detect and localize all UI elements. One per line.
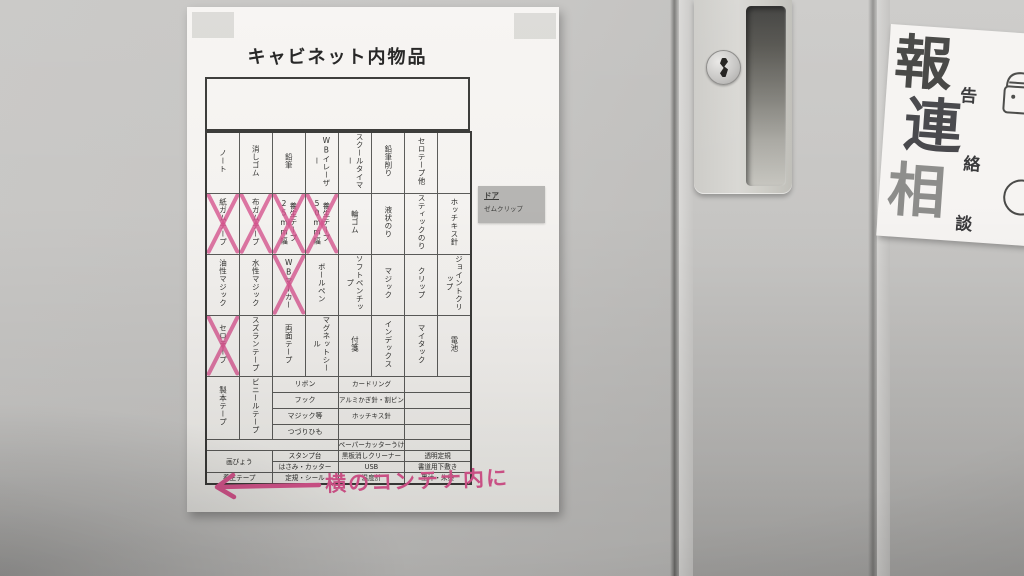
table-cell: 養生テープ25mm幅 <box>279 194 298 250</box>
table-cell: 消しゴム <box>251 145 260 177</box>
table-cell: ホッチキス針 <box>339 409 405 425</box>
table-cell: ノート <box>218 149 227 173</box>
table-row: 油性マジック 水性マジック WBマーカー ボールペン ソフトペンチップ マジック… <box>206 255 471 316</box>
sign-kanji-ren: 連 <box>902 95 964 157</box>
sign-kanji-raku: 絡 <box>963 149 982 175</box>
table-cell: セロテープ他 <box>417 137 426 185</box>
table-cell: 鉛筆 <box>284 153 293 169</box>
left-arrow-icon <box>203 469 323 503</box>
table-cell: インデックス <box>383 320 392 368</box>
table-cell: セロテープ <box>218 324 227 364</box>
table-cell: 付箋 <box>350 336 359 352</box>
keyhole-icon <box>706 50 741 85</box>
table-cell: 両面テープ <box>284 324 293 364</box>
sign-kanji-dan: 談 <box>955 209 974 235</box>
table-cell <box>405 440 471 451</box>
handwritten-note: 横のコンテナ内に <box>325 462 510 498</box>
empty-header-box <box>205 77 470 131</box>
table-row: セロテープ スズランテープ 両面テープ マグネットシール 付箋 インデックス マ… <box>206 316 471 377</box>
table-cell: 液状のり <box>383 206 392 238</box>
table-cell: フック <box>273 393 338 409</box>
table-row: 画びょう スタンプ台 黒板消しクリーナー 透明定規 <box>206 451 471 462</box>
table-row: 製本テープ ビニールテープ リボン フック マジック等 つづりひも カードリング… <box>206 377 471 440</box>
sub-list <box>405 377 471 440</box>
table-cell: スズランテープ <box>251 316 260 372</box>
circle-doodle-icon <box>996 174 1024 221</box>
sub-list: リボン フック マジック等 つづりひも <box>272 377 338 440</box>
tape-corner <box>514 13 556 39</box>
table-cell: つづりひも <box>273 425 338 439</box>
table-row: ペーパーカッターうけ <box>206 440 471 451</box>
table-cell: 電池 <box>449 336 458 352</box>
table-cell: リボン <box>273 377 338 393</box>
items-table: ノート 消しゴム 鉛筆 WBイレーザー スクールタイマー 鉛筆削り セロテープ他… <box>205 131 472 485</box>
page-title: キャビネット内物品 <box>205 43 470 69</box>
table-cell <box>405 393 470 409</box>
table-cell <box>339 425 405 439</box>
sub-list: カードリング アルミかぎ針・割ピン ホッチキス針 <box>338 377 405 440</box>
table-cell: マグネットシール <box>312 316 331 372</box>
table-cell: 布ガムテープ <box>251 198 260 246</box>
table-cell: ホッチキス針 <box>449 198 458 246</box>
horenso-sign: 報 告 連 絡 相 談 <box>876 24 1024 246</box>
table-cell: 水性マジック <box>251 259 260 307</box>
sticky-note: ドア ゼムクリップ <box>478 186 545 223</box>
cabinet-photo: キャビネット内物品 ノート 消しゴム 鉛筆 WBイレーザー スクールタイマー 鉛… <box>0 0 1024 576</box>
items-list-paper: キャビネット内物品 ノート 消しゴム 鉛筆 WBイレーザー スクールタイマー 鉛… <box>187 7 559 512</box>
table-cell: 油性マジック <box>218 259 227 307</box>
table-cell: ソフトペンチップ <box>345 255 364 311</box>
table-cell: ペーパーカッターうけ <box>338 440 405 451</box>
table-cell: 紙ガムテープ <box>218 198 227 246</box>
sign-kanji-hou: 報 <box>892 32 954 94</box>
table-cell: ボールペン <box>317 263 326 303</box>
table-cell: ジョイントクリップ <box>445 255 464 311</box>
table-cell <box>405 425 470 439</box>
sign-kanji-sou: 相 <box>885 160 947 222</box>
table-cell: スクールタイマー <box>345 133 364 189</box>
sticky-note-title: ドア <box>484 190 545 201</box>
table-cell <box>206 440 338 451</box>
table-cell: 製本テープ <box>218 386 227 426</box>
table-cell: マジック等 <box>273 409 338 425</box>
table-cell <box>405 377 470 393</box>
table-cell: 鉛筆削り <box>383 145 392 177</box>
table-cell: スタンプ台 <box>272 451 338 462</box>
table-cell: 養生テープ50mm幅 <box>312 194 331 250</box>
cabinet-handle <box>694 0 792 194</box>
table-cell: マジック <box>383 267 392 299</box>
table-cell: 透明定規 <box>405 451 471 462</box>
table-cell: アルミかぎ針・割ピン <box>339 393 405 409</box>
table-cell: クリップ <box>417 267 426 299</box>
table-cell: ビニールテープ <box>251 378 260 434</box>
table-cell: スティックのり <box>417 194 426 250</box>
sticky-note-item: ゼムクリップ <box>484 203 545 213</box>
table-cell: マイタック <box>417 324 426 364</box>
table-cell: 黒板消しクリーナー <box>338 451 405 462</box>
robot-doodle-icon <box>996 68 1024 129</box>
door-edge <box>679 0 693 576</box>
tape-corner <box>192 12 234 38</box>
table-cell: WBマーカー <box>284 258 293 309</box>
table-cell: カードリング <box>339 377 405 393</box>
table-cell: 輪ゴム <box>350 210 359 234</box>
keyhole-slot <box>720 58 728 77</box>
table-cell: WBイレーザー <box>312 133 331 189</box>
table-row: 紙ガムテープ 布ガムテープ 養生テープ25mm幅 養生テープ50mm幅 輪ゴム … <box>206 194 471 255</box>
table-cell <box>405 409 470 425</box>
table-row: ノート 消しゴム 鉛筆 WBイレーザー スクールタイマー 鉛筆削り セロテープ他 <box>206 132 471 194</box>
handle-recess <box>746 6 786 186</box>
